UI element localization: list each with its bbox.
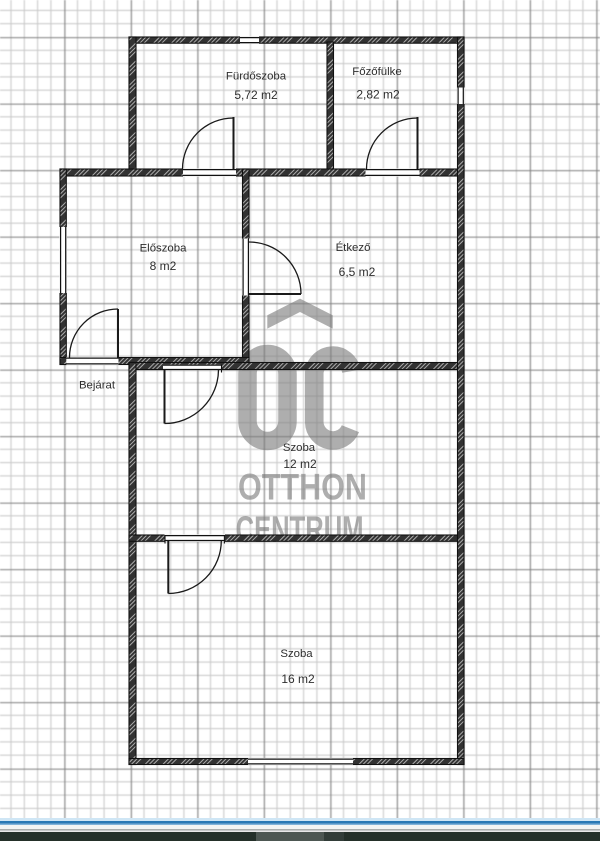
svg-text:5,72 m2: 5,72 m2 <box>234 88 278 102</box>
svg-text:OTTHON: OTTHON <box>238 466 367 508</box>
svg-text:Szoba: Szoba <box>283 442 316 454</box>
svg-text:Fürdőszoba: Fürdőszoba <box>226 71 287 83</box>
svg-text:Étkező: Étkező <box>336 241 371 254</box>
svg-text:Szoba: Szoba <box>280 648 313 660</box>
svg-text:Előszoba: Előszoba <box>140 243 188 255</box>
svg-text:CENTRUM: CENTRUM <box>236 508 364 550</box>
svg-text:Bejárat: Bejárat <box>79 379 116 391</box>
svg-text:6,5 m2: 6,5 m2 <box>339 265 376 279</box>
svg-text:16 m2: 16 m2 <box>281 672 315 686</box>
svg-text:12 m2: 12 m2 <box>283 457 317 471</box>
svg-text:8 m2: 8 m2 <box>150 259 177 273</box>
svg-text:2,82 m2: 2,82 m2 <box>356 88 400 102</box>
svg-text:Főzőfülke: Főzőfülke <box>352 66 401 78</box>
